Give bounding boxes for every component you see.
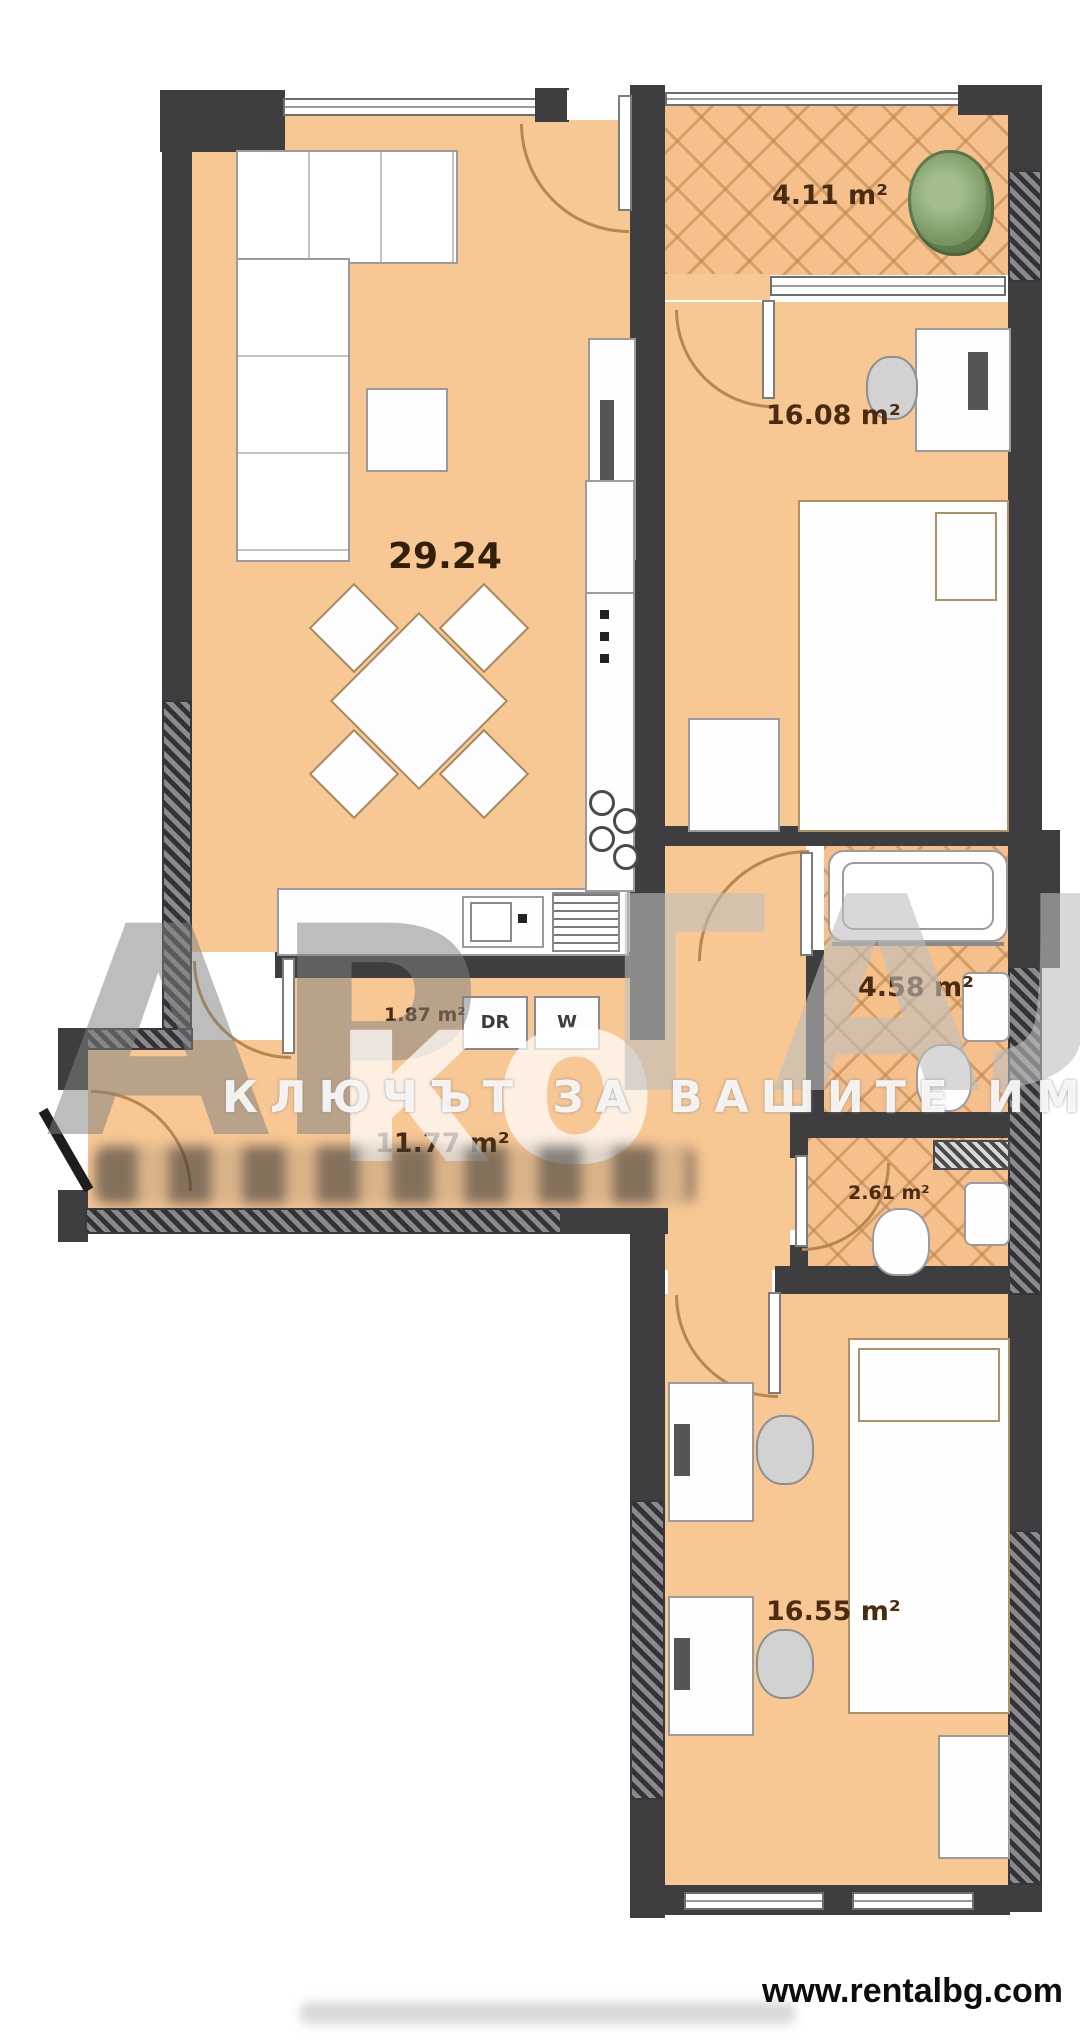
bedroom2-window-left (684, 1892, 824, 1910)
balcony-rail-window (665, 92, 963, 106)
wall-right-hatch-upper (1008, 170, 1042, 282)
panel-dot (600, 654, 609, 663)
balcony-area-label: 4.11 m² (772, 180, 888, 211)
bedroom2-door-opening (668, 1266, 772, 1294)
bedroom1-pillow (935, 512, 997, 601)
bedroom1-window (770, 276, 1006, 296)
living-room-area-label: 29.24 (388, 536, 502, 577)
bedroom1-dresser (688, 718, 780, 832)
wc-washbasin (964, 1182, 1010, 1246)
bedroom1-area-label: 16.08 m² (766, 400, 901, 431)
bedroom1-monitor-icon (968, 352, 988, 410)
site-url: www.rentalbg.com (762, 1972, 1063, 2011)
wc-door-leaf (795, 1155, 808, 1247)
sofa-horizontal-arm (236, 150, 458, 264)
bedroom2-door-leaf (768, 1292, 781, 1394)
bedroom2-pillow (858, 1348, 1000, 1422)
bedroom2-cabinet (938, 1735, 1010, 1859)
panel-dot (600, 610, 609, 619)
wall-right-hatch-lower (1008, 1530, 1042, 1885)
kitchen-cabinet (585, 480, 635, 594)
bedroom1-door-leaf (762, 300, 775, 399)
wall-left-outer-upper (162, 90, 192, 700)
bedroom2-window-right (852, 1892, 974, 1910)
panel-dot (600, 632, 609, 641)
floor-plan: DR W 29.24 4.11 m² 16.08 m² 4.58 m² 1.87… (0, 0, 1080, 2038)
stove-burner (613, 808, 639, 834)
bedroom1-door-opening (665, 274, 770, 300)
wall-bedroom2-left-hatch (630, 1500, 665, 1800)
watermark-tagline: КЛЮЧЪТ ЗА ВАШИТЕ ИМОТИ (222, 1072, 1080, 1123)
wall-living-balcony-junction (535, 88, 569, 122)
hallway-bedroom2-connector-floor (665, 1230, 790, 1270)
wc-area-label: 2.61 m² (848, 1182, 930, 1204)
bedroom1-desk (915, 328, 1011, 452)
footer-blur-bar (300, 2002, 795, 2024)
sofa-vertical-arm (236, 258, 350, 562)
bedroom2-monitor-icon (674, 1638, 690, 1690)
watermark-blurred-line (95, 1146, 695, 1204)
wall-balcony-top-right-block (958, 85, 1010, 115)
living-room-window (283, 98, 541, 116)
bedroom2-desk-chair (756, 1415, 814, 1485)
wc-toilet (872, 1208, 930, 1276)
sink-faucet-icon (518, 914, 527, 923)
coffee-table (366, 388, 448, 472)
balcony-door-leaf (618, 95, 632, 211)
bedroom2-monitor-icon (674, 1424, 690, 1476)
bedroom2-area-label: 16.55 m² (766, 1596, 901, 1627)
bedroom2-desk-chair (756, 1629, 814, 1699)
stove-burner (589, 790, 615, 816)
